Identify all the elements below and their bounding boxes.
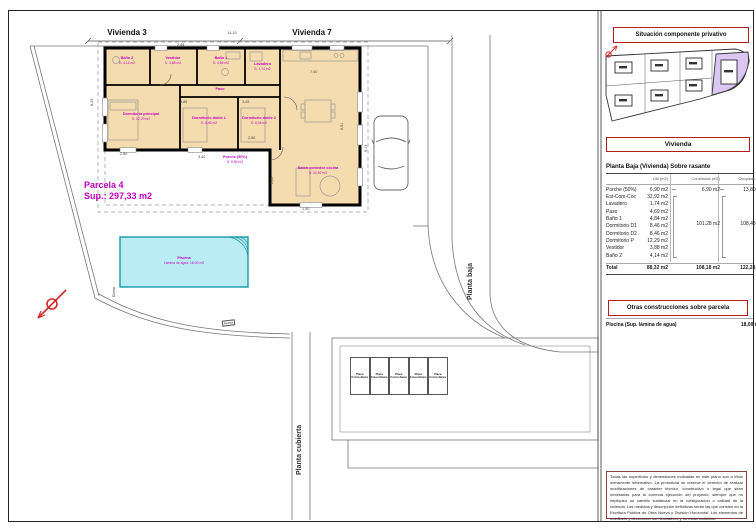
strip-planta-cubierta: Planta cubierta <box>296 425 303 475</box>
dim-260: 2,60 <box>270 177 274 184</box>
table-row: Paso4,69 m2 <box>606 208 756 215</box>
table-total-row: Total 88,32 m2 108,18 m2 122,28 m2 <box>606 264 756 271</box>
bracket-ocupada-top <box>722 196 726 197</box>
col-ocupada: Ocupada (m2) <box>720 176 756 181</box>
table-row: Dormitorio D28,46 m2 <box>606 230 756 237</box>
dim-280: 2,80 <box>120 152 127 156</box>
room-salon-comedor-cocina: Salón comedor cocinaS: 32,92 m2 <box>288 166 348 175</box>
porche-tick-ocupada <box>720 189 724 190</box>
table-column-headers: Útil (m2) Construida (m2) Ocupada (m2) <box>606 174 756 183</box>
solar-panel-array: PlacaFotovoltaicaPlacaFotovoltaicaPlacaF… <box>350 357 448 395</box>
pool-label: PiscinaLámina de agua: 18,00 m2 <box>140 256 228 265</box>
minimap <box>606 49 749 121</box>
situacion-header: Situación componente privativo <box>613 27 749 43</box>
table-row: Porche (50%)6,90 m26,90 m213,80 m2 <box>606 186 756 193</box>
room-dormitorio-doble-1: Dormitorio doble 1S: 8,46 m2 <box>186 116 232 125</box>
room-bano2: Baño 2S: 4,14 m2 <box>105 56 149 65</box>
room-porche: Porche (50%)S: 6,90 m2 <box>210 155 260 164</box>
table-row: Vestidor3,88 m2 <box>606 245 756 252</box>
legal-disclaimer: Todas las superficies y dimensiones indi… <box>606 471 747 519</box>
vivienda-header: Vivienda <box>606 137 750 152</box>
table-row: Lavadero1,74 m2 <box>606 201 756 208</box>
panel-separator <box>598 10 601 521</box>
dim-385: 3,85 <box>180 100 187 104</box>
solar-panel: PlacaFotovoltaica <box>350 357 370 395</box>
room-vestidor: VestidorS: 3,88 m2 <box>151 56 195 65</box>
table-row: Baño 24,14 m2 <box>606 252 756 259</box>
bracket-construida-bottom <box>673 257 677 258</box>
table-title: Planta Baja (Vivienda) Sobre rasante <box>606 164 710 170</box>
table-row: Est-Com-Coc32,92 m2 <box>606 193 756 200</box>
parcela-label: Parcela 4 Sup.: 297,33 m2 <box>84 180 152 203</box>
label-vivienda-7: Vivienda 7 <box>272 28 352 37</box>
room-bano1: Baño 1S: 4,84 m2 <box>199 56 243 65</box>
bracket-ocupada <box>722 196 723 258</box>
table-line-bottom <box>606 274 753 275</box>
group-ocupada-value: 108,48 m2 <box>720 221 756 227</box>
dim-right: 9,13 <box>364 145 368 152</box>
dim-244: 2,44 <box>177 43 184 47</box>
ducha-label: Ducha <box>112 287 116 297</box>
label-vivienda-3: Vivienda 3 <box>87 28 167 37</box>
bracket-ocupada-bottom <box>722 257 726 258</box>
top-dimension-line <box>85 38 453 44</box>
solar-panel: PlacaFotovoltaica <box>389 357 409 395</box>
dim-285: 2,85 <box>248 136 255 140</box>
north-arrow <box>38 290 66 318</box>
dim-345: 3,45 <box>242 100 249 104</box>
drawing-sheet: Vivienda 3 Vivienda 7 14,10 8,29 9,13 2,… <box>0 0 756 528</box>
dim-total-width: 14,10 <box>212 31 252 35</box>
otras-line <box>606 318 753 319</box>
room-paso: Paso <box>200 87 240 92</box>
otras-header: Otras construcciones sobre parcela <box>608 300 748 316</box>
dim-340: 3,40 <box>198 155 205 159</box>
room-dormitorio-principal: Dormitorio principalS: 12,29 m2 <box>110 112 172 121</box>
dim-740: 7,40 <box>310 70 317 74</box>
bracket-construida-top <box>673 196 677 197</box>
dim-851: 8,51 <box>340 123 344 130</box>
group-construida-value: 101,28 m2 <box>668 221 720 227</box>
col-construida: Construida (m2) <box>668 176 720 181</box>
table-line-under-headers <box>606 184 753 185</box>
table-row: Dormitorio P12,29 m2 <box>606 237 756 244</box>
bracket-construida <box>673 196 674 258</box>
room-lavadero: LavaderoS: 1,74 m2 <box>246 62 279 71</box>
solar-panel: PlacaFotovoltaica <box>370 357 390 395</box>
room-dormitorio-doble-2: Dormitorio doble 2S: 8,46 m2 <box>236 116 282 125</box>
strip-planta-baja: Planta baja <box>467 263 474 300</box>
solar-panel: PlacaFotovoltaica <box>409 357 429 395</box>
col-util: Útil (m2) <box>642 176 668 181</box>
dim-150: 1,50 <box>302 207 309 211</box>
car <box>372 116 410 190</box>
porche-tick-construida <box>672 189 676 190</box>
piscina-row-value: 18,00 m2 <box>606 322 756 328</box>
dim-left: 8,29 <box>90 99 94 106</box>
solar-panel: PlacaFotovoltaica <box>428 357 448 395</box>
